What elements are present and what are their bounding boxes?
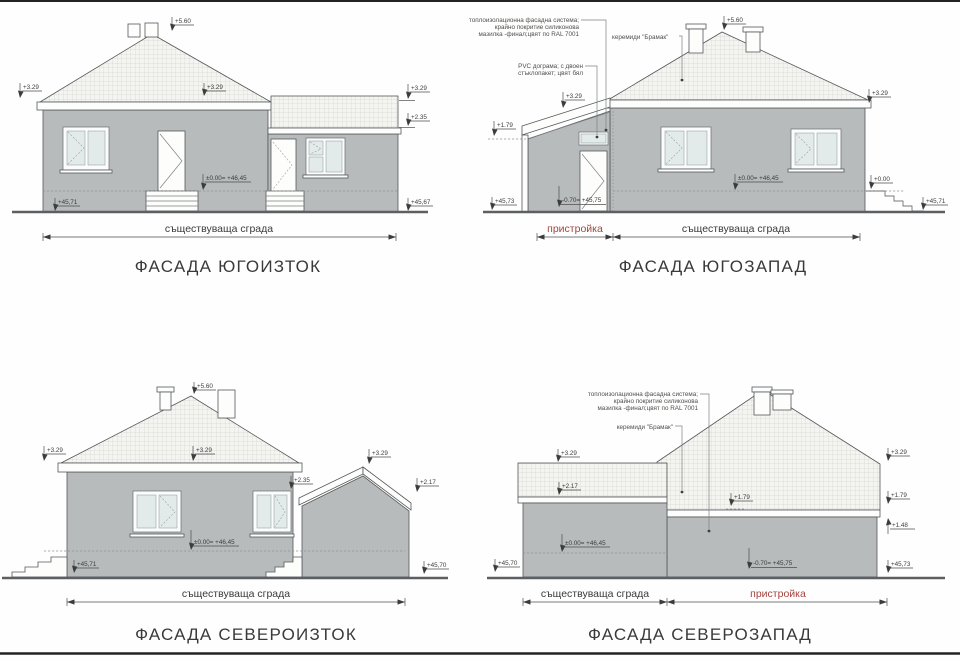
sw-main-roof <box>608 32 868 100</box>
svg-text:керемиди "Брамак": керемиди "Брамак" <box>617 424 673 431</box>
ne-span-dimension: съществуваща сграда <box>67 588 405 606</box>
elevation-mark: +45,71 <box>921 197 948 210</box>
elevation-mark: +3.29 <box>399 84 430 101</box>
se-annex-roof <box>271 96 398 128</box>
sw-window <box>658 127 714 172</box>
nw-span-dimension-existing: съществуваща сграда <box>523 588 667 606</box>
svg-text:+45,67: +45,67 <box>411 199 431 206</box>
svg-text:+3.29: +3.29 <box>23 84 39 91</box>
sw-span-dimension-annex: пристройка <box>537 223 613 241</box>
svg-text:+2.35: +2.35 <box>294 477 310 484</box>
elevation-mark: +2.17 <box>415 478 439 492</box>
svg-text:+45,70: +45,70 <box>498 560 518 567</box>
elevation-mark: +3.29 <box>886 448 910 461</box>
elevation-mark: +3.29 <box>42 446 66 461</box>
ne-main-roof <box>61 396 299 463</box>
svg-text:крайно покритие силиконова: крайно покритие силиконова <box>614 397 699 405</box>
svg-text:-0.70= +45,75: -0.70= +45,75 <box>753 560 793 567</box>
svg-text:+45,71: +45,71 <box>926 198 946 205</box>
svg-text:крайно покритие силиконова: крайно покритие силиконова <box>495 23 580 31</box>
svg-text:+2.17: +2.17 <box>420 479 436 486</box>
ne-window <box>130 491 184 537</box>
facade-nw: топлоизолационна фасадна система; крайно… <box>487 387 945 644</box>
svg-text:+3.29: +3.29 <box>207 84 223 91</box>
se-window <box>60 127 112 173</box>
svg-text:+3.29: +3.29 <box>372 450 388 457</box>
svg-text:+2.35: +2.35 <box>411 114 427 121</box>
nw-annex-wall <box>667 517 877 577</box>
svg-text:-0.70= +45,75: -0.70= +45,75 <box>562 197 602 204</box>
svg-text:+0.00: +0.00 <box>874 176 890 183</box>
elevation-mark: +5.60 <box>192 382 216 394</box>
sw-fascia <box>606 100 871 108</box>
elevation-mark: +3.29 <box>561 92 585 108</box>
sw-annex-span-label: пристройка <box>547 223 603 235</box>
svg-text:+2.17: +2.17 <box>562 483 578 490</box>
svg-text:+45,71: +45,71 <box>58 199 78 206</box>
svg-text:+3.29: +3.29 <box>411 85 427 92</box>
svg-text:+1.79: +1.79 <box>497 122 513 129</box>
ne-span-label: съществуваща сграда <box>182 588 290 600</box>
svg-text:±0.00= +46,45: ±0.00= +46,45 <box>738 175 779 182</box>
svg-text:+3.29: +3.29 <box>47 447 63 454</box>
svg-text:±0.00= +46,45: ±0.00= +46,45 <box>194 539 235 546</box>
ne-window <box>250 491 294 537</box>
elevation-mark: +1.48 <box>886 518 915 534</box>
svg-text:+45,73: +45,73 <box>495 198 515 205</box>
elevation-mark: +45,67 <box>406 198 433 211</box>
svg-text:+1.79: +1.79 <box>734 494 750 501</box>
se-main-roof <box>40 34 271 102</box>
svg-text:керемиди "Брамак": керемиди "Брамак" <box>612 34 668 41</box>
facade-ne: +5.60 +3.29 +3.29 +3.29 +2.35 +2.17 ±0.0… <box>2 382 449 644</box>
se-span-label: съществуваща сграда <box>165 223 273 235</box>
svg-text:±0.00= +46,45: ±0.00= +46,45 <box>565 540 606 547</box>
se-annex-door <box>271 139 296 192</box>
svg-text:+5.60: +5.60 <box>197 383 213 390</box>
facade-se: +5.60 +3.29 +3.29 +3.29 +2.35 ±0.00= +46… <box>12 17 433 276</box>
ne-title: ФАСАДА СЕВЕРОИЗТОК <box>135 625 357 644</box>
elevation-mark: +3.29 <box>367 449 391 464</box>
se-door <box>158 131 185 191</box>
se-stoop <box>146 191 198 211</box>
svg-text:мазилка -финал;цвят по RAL 700: мазилка -финал;цвят по RAL 7001 <box>478 31 579 38</box>
elevation-mark: +2.35 <box>399 113 430 128</box>
svg-text:+3.29: +3.29 <box>872 90 888 97</box>
svg-text:PVC дограма; с двоен: PVC дограма; с двоен <box>518 63 583 70</box>
nw-span-dimension-annex: пристройка <box>667 588 887 606</box>
sw-steps <box>866 191 924 211</box>
svg-text:стъклопакет; цвят бял: стъклопакет; цвят бял <box>518 69 583 77</box>
svg-text:топлоизолационна фасадна систе: топлоизолационна фасадна система; <box>588 391 698 398</box>
elevation-mark: +1.79 <box>488 121 526 139</box>
se-fascia <box>37 102 274 110</box>
elevation-mark: +0.00 <box>869 175 893 189</box>
svg-text:+3.29: +3.29 <box>566 93 582 100</box>
svg-text:+45,73: +45,73 <box>891 561 911 568</box>
elevation-mark: +5.60 <box>722 16 746 30</box>
svg-text:+3.29: +3.29 <box>196 447 212 454</box>
se-annex-window <box>303 138 348 178</box>
se-span-dimension: съществуваща сграда <box>43 223 396 241</box>
svg-text:+1.48: +1.48 <box>892 522 908 529</box>
svg-text:+3.29: +3.29 <box>891 449 907 456</box>
elevation-mark: +45,70 <box>422 561 449 574</box>
elevation-mark: +3.29 <box>18 83 42 98</box>
elevation-mark: +5.60 <box>170 17 194 31</box>
sw-transom-window <box>579 132 608 145</box>
facade-drawings-canvas: +5.60 +3.29 +3.29 +3.29 +2.35 ±0.00= +46… <box>0 0 960 660</box>
sw-span-dimension-existing: съществуваща сграда <box>613 223 860 241</box>
nw-fascia <box>667 510 880 517</box>
se-chimney <box>128 24 140 37</box>
elevation-drawing-sheet: +5.60 +3.29 +3.29 +3.29 +2.35 ±0.00= +46… <box>0 0 960 660</box>
svg-text:+45,70: +45,70 <box>427 562 447 569</box>
nw-existing-span-label: съществуваща сграда <box>541 588 649 600</box>
elevation-mark: +45,70 <box>493 559 520 572</box>
ne-steps-left <box>12 557 67 577</box>
svg-text:+45,71: +45,71 <box>77 561 97 568</box>
svg-text:±0.00= +46,45: ±0.00= +46,45 <box>206 175 247 182</box>
svg-text:топлоизолационна фасадна систе: топлоизолационна фасадна система; <box>469 17 579 24</box>
svg-text:мазилка -финал;цвят по RAL 700: мазилка -финал;цвят по RAL 7001 <box>597 405 698 412</box>
se-chimney <box>145 23 158 37</box>
nw-annex-span-label: пристройка <box>750 588 806 600</box>
se-annex-fascia <box>268 128 401 134</box>
nw-parapet-band <box>518 497 667 503</box>
sw-window <box>788 129 844 172</box>
svg-text:+5.60: +5.60 <box>727 17 743 24</box>
se-title: ФАСАДА ЮГОИЗТОК <box>135 257 321 276</box>
svg-text:+3.29: +3.29 <box>561 450 577 457</box>
svg-text:+5.60: +5.60 <box>175 18 191 25</box>
nw-title: ФАСАДА СЕВЕРОЗАПАД <box>588 625 812 644</box>
facade-sw: топлоизолационна фасадна система; крайно… <box>469 16 948 276</box>
elevation-mark: +45,73 <box>490 197 517 210</box>
sw-existing-span-label: съществуваща сграда <box>682 223 790 235</box>
ne-fascia <box>58 463 302 472</box>
svg-text:+1.79: +1.79 <box>891 492 907 499</box>
se-annex-stoop <box>266 191 304 211</box>
elevation-mark: +1.79 <box>886 491 910 504</box>
elevation-mark: +3.29 <box>556 449 580 462</box>
nw-parapet-roof <box>518 463 667 497</box>
sw-title: ФАСАДА ЮГОЗАПАД <box>619 257 808 276</box>
elevation-mark: +45,73 <box>886 560 913 573</box>
sw-annex-corner-board <box>522 135 528 212</box>
